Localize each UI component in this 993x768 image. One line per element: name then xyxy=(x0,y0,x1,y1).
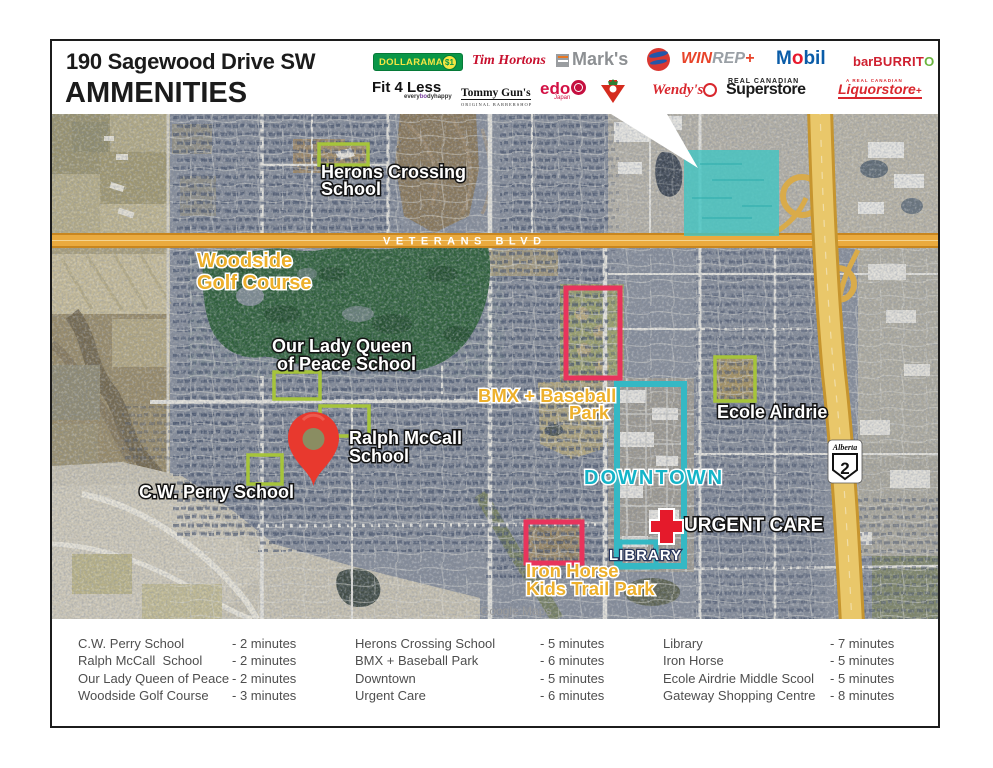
svg-text:School: School xyxy=(349,446,409,466)
svg-text:LIBRARY: LIBRARY xyxy=(609,547,682,564)
svg-text:Kids Trail Park: Kids Trail Park xyxy=(526,578,655,599)
svg-text:DOWNTOWN: DOWNTOWN xyxy=(584,467,724,489)
svg-text:VETERANS BLVD: VETERANS BLVD xyxy=(383,236,547,248)
svg-text:Golf Course: Golf Course xyxy=(197,272,311,294)
svg-text:Alberta: Alberta xyxy=(832,443,857,452)
svg-text:Ecole Airdrie: Ecole Airdrie xyxy=(717,402,827,422)
svg-text:C.W. Perry School: C.W. Perry School xyxy=(139,482,294,502)
svg-text:2: 2 xyxy=(840,459,849,478)
svg-text:School: School xyxy=(321,179,381,199)
svg-text:Our Lady Queen: Our Lady Queen xyxy=(272,336,412,356)
svg-text:Park: Park xyxy=(569,402,610,423)
svg-text:Ralph McCall: Ralph McCall xyxy=(349,428,462,448)
svg-text:URGENT CARE: URGENT CARE xyxy=(684,515,823,536)
svg-text:of Peace School: of Peace School xyxy=(277,354,416,374)
svg-text:Google Maps: Google Maps xyxy=(480,604,551,618)
svg-text:Woodside: Woodside xyxy=(197,250,292,272)
